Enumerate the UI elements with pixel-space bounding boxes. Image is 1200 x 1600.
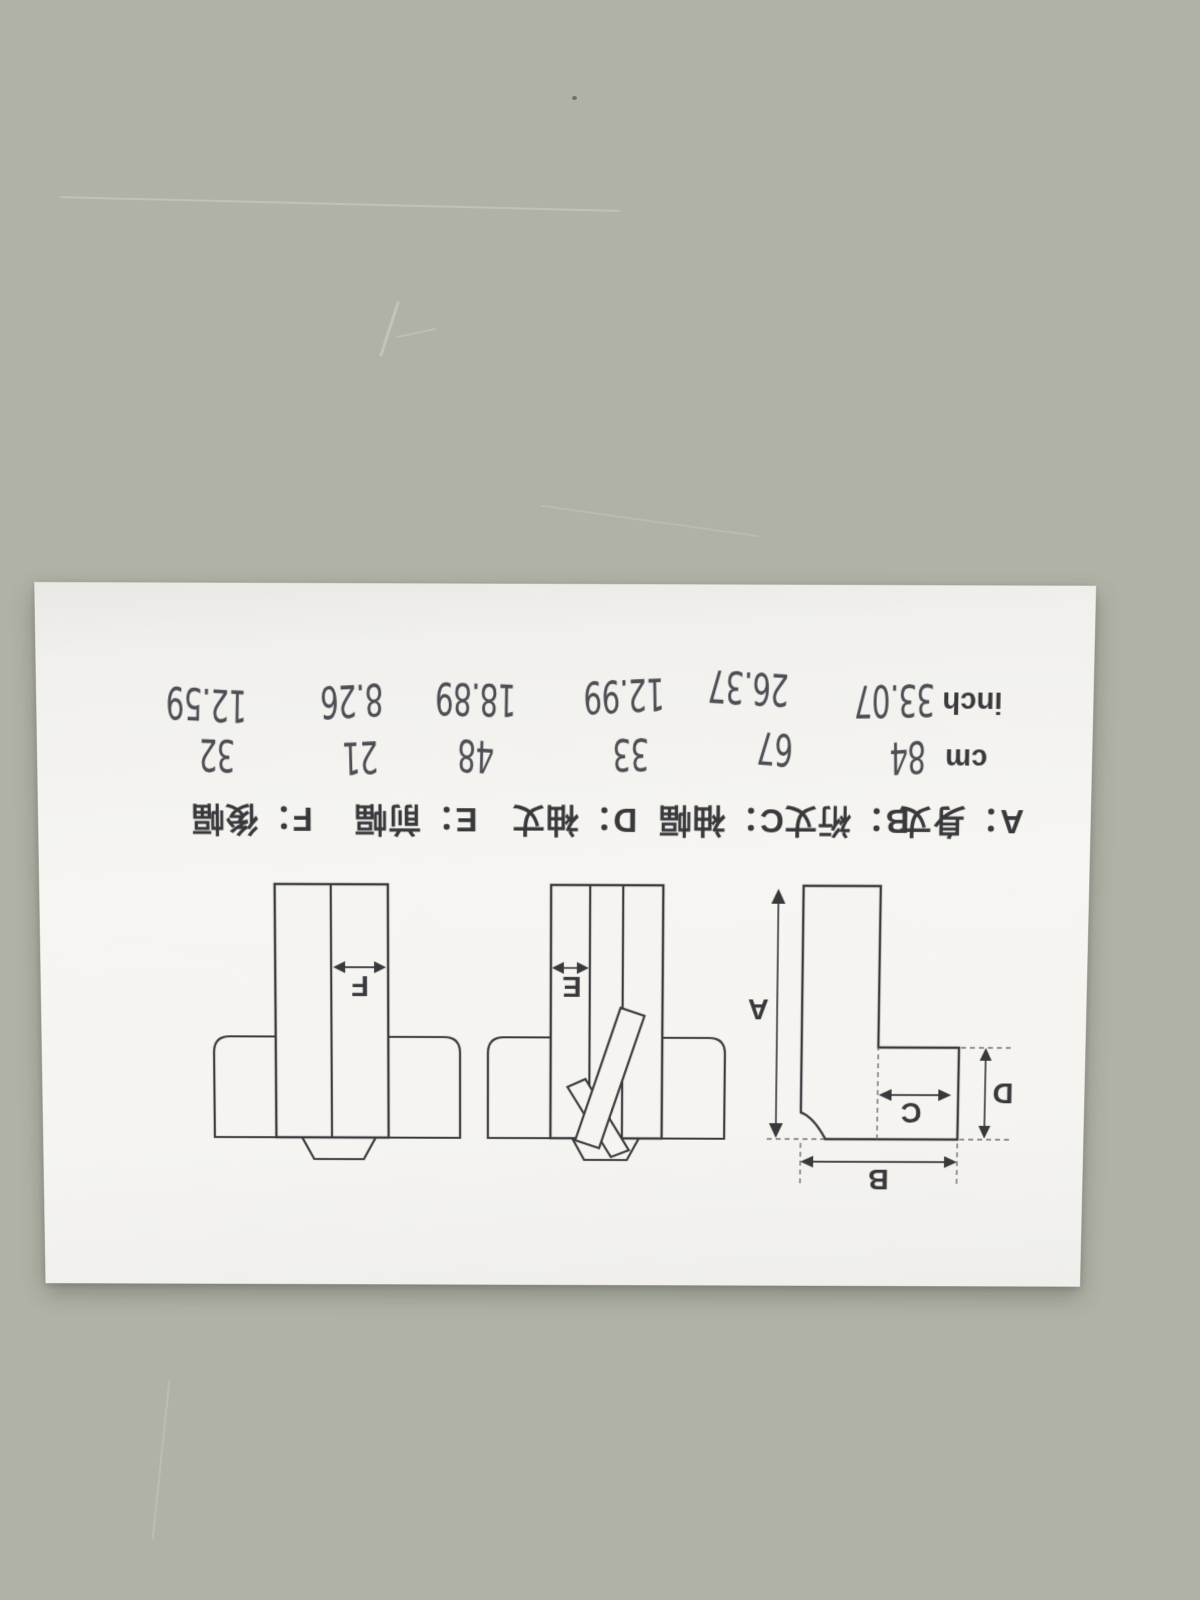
cm-value-e: 21 xyxy=(342,733,379,779)
measure-label-f: F：後幅 xyxy=(191,800,313,837)
inch-unit-label: inch xyxy=(942,684,1003,718)
garment-outline xyxy=(801,886,962,1140)
table-surface: B D C A E xyxy=(0,0,1200,1600)
surface-scratch xyxy=(396,328,436,338)
left-sleeve xyxy=(657,1038,725,1139)
size-chart-paper: B D C A E xyxy=(34,582,1096,1287)
cm-value-c: 33 xyxy=(613,731,649,776)
cm-value-f: 32 xyxy=(199,731,235,777)
diagram-letter-a: A xyxy=(748,992,769,1024)
measure-label-e: E：前幅 xyxy=(354,800,478,837)
measure-label-b: B：裄丈 xyxy=(784,802,910,839)
surface-scratch xyxy=(379,301,400,357)
right-sleeve xyxy=(214,1036,281,1137)
inch-value-a: 33.07 xyxy=(854,676,935,723)
diagram-letter-d: D xyxy=(992,1077,1013,1108)
cm-unit-label: cm xyxy=(945,741,988,775)
inch-value-e: 8.26 xyxy=(320,676,384,724)
collar-top xyxy=(302,1137,376,1159)
inch-value-c: 12.99 xyxy=(584,670,665,719)
left-sleeve xyxy=(383,1037,460,1138)
right-sleeve xyxy=(488,1037,556,1138)
inch-value-d: 18.89 xyxy=(436,674,517,721)
measure-label-a: A：身丈 xyxy=(898,802,1024,839)
cm-value-d: 48 xyxy=(458,731,495,778)
inch-value-f: 12.59 xyxy=(166,678,247,727)
front-view-diagram: E xyxy=(473,870,739,1178)
diagram-letter-f: F xyxy=(351,969,369,1001)
back-view-diagram: F xyxy=(192,869,468,1178)
diagram-letter-c: C xyxy=(900,1096,921,1127)
inch-value-b: 26.37 xyxy=(708,662,790,711)
cm-value-a: 84 xyxy=(890,733,926,779)
surface-scratch xyxy=(152,1380,171,1539)
diagram-letter-b: B xyxy=(868,1163,889,1194)
surface-speck xyxy=(572,96,577,100)
measure-label-d: D：袖丈 xyxy=(512,801,638,838)
cm-value-b: 67 xyxy=(756,724,794,771)
folded-garment-diagram: B D C A xyxy=(740,871,1019,1194)
diagram-letter-e: E xyxy=(562,970,581,1002)
surface-scratch xyxy=(60,196,620,212)
surface-scratch xyxy=(541,505,759,538)
measure-label-c: C：袖幅 xyxy=(658,802,784,839)
